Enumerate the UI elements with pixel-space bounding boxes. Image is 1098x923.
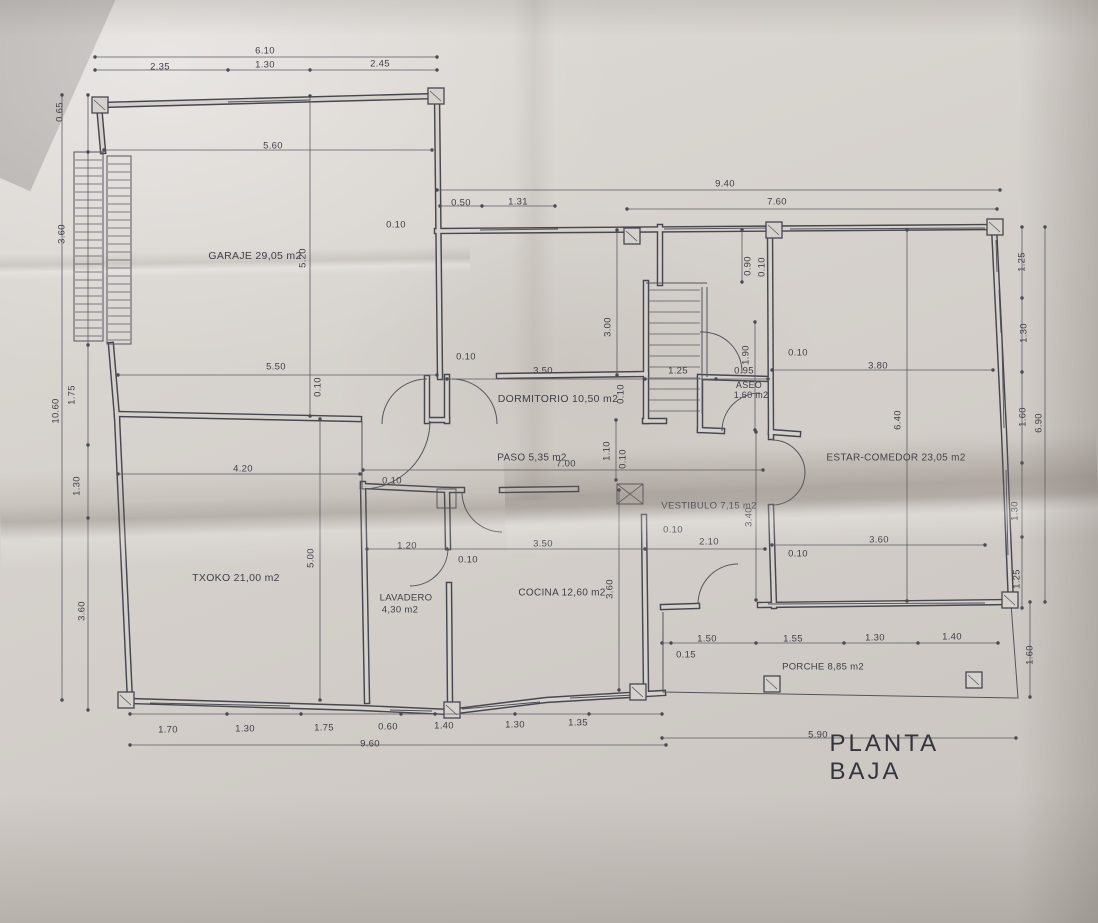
dimension-label: 1.40 bbox=[942, 632, 962, 643]
dimension-label: 7.60 bbox=[767, 197, 787, 208]
dimension-label: 1.90 bbox=[741, 345, 752, 365]
dimension-label: 0.10 bbox=[616, 384, 627, 404]
room-label-dormitorio: DORMITORIO 10,50 m2 bbox=[498, 393, 618, 405]
dimension-label: 0.10 bbox=[458, 555, 478, 566]
dimension-label: 0.95 bbox=[734, 366, 754, 377]
dimension-label: 1.10 bbox=[602, 441, 613, 461]
dimension-label: 3.60 bbox=[77, 601, 88, 621]
dimension-label: 1.60 bbox=[1018, 407, 1029, 427]
dimension-label: 3.50 bbox=[533, 539, 553, 550]
dimension-label: 9.40 bbox=[715, 179, 735, 190]
room-label-porche: PORCHE 8,85 m2 bbox=[782, 662, 864, 673]
dimension-label: 9.60 bbox=[360, 739, 380, 750]
dimension-label: 0.65 bbox=[55, 102, 66, 122]
room-label-lavadero: LAVADERO bbox=[380, 593, 433, 604]
dimension-label: 0.10 bbox=[386, 220, 406, 231]
dimension-label: 0.10 bbox=[313, 377, 324, 397]
dimension-label: 5.00 bbox=[306, 548, 317, 568]
dimension-label: 1.30 bbox=[865, 633, 885, 644]
dimension-label: 1.31 bbox=[508, 197, 528, 208]
room-label-estar-comedor: ESTAR-COMEDOR 23,05 m2 bbox=[826, 453, 965, 464]
dimension-label: 5.20 bbox=[298, 248, 309, 268]
dimension-label: 0.10 bbox=[788, 348, 808, 359]
dimension-label: 2.45 bbox=[370, 59, 390, 70]
dimension-label: 1.60 bbox=[1025, 645, 1036, 665]
dimension-label: 0.10 bbox=[663, 525, 683, 536]
dimension-label: 5.60 bbox=[263, 141, 283, 152]
plan-title: PLANTA BAJA bbox=[830, 730, 1009, 786]
dimension-label: 0.60 bbox=[378, 722, 398, 733]
room-label-lavadero-area: 4,30 m2 bbox=[382, 605, 418, 616]
dimension-label: 1.30 bbox=[235, 724, 255, 735]
dimension-label: 0.90 bbox=[743, 256, 754, 276]
dimension-label: 3.60 bbox=[869, 535, 889, 546]
dimension-label: 7.00 bbox=[556, 459, 576, 470]
room-label-txoko: TXOKO 21,00 m2 bbox=[192, 572, 280, 584]
dimension-label: 5.50 bbox=[266, 362, 286, 373]
dimension-label: 1.30 bbox=[1019, 323, 1030, 343]
room-label-vestibulo: VESTIBULO 7,15 m2 bbox=[661, 501, 756, 512]
dimension-label: 1.25 bbox=[1017, 252, 1028, 272]
dimension-label: 6.10 bbox=[255, 46, 275, 57]
dimension-label: 3.60 bbox=[57, 224, 68, 244]
dimension-label: 0.10 bbox=[456, 352, 476, 363]
dimension-label: 1.40 bbox=[434, 721, 454, 732]
dimension-label: 1.20 bbox=[397, 541, 417, 552]
room-label-aseo: ASEO bbox=[736, 380, 762, 390]
dimension-label: 3.00 bbox=[603, 317, 614, 337]
dimension-label: 1.55 bbox=[783, 634, 803, 645]
dimension-label: 1.75 bbox=[314, 723, 334, 734]
dimension-label: 0.15 bbox=[676, 650, 696, 661]
dimension-label: 6.90 bbox=[1034, 413, 1045, 433]
dimension-label: 0.10 bbox=[382, 476, 402, 487]
dimension-label: 3.80 bbox=[868, 361, 888, 372]
dimension-label: 0.10 bbox=[618, 449, 629, 469]
room-label-garaje: GARAJE 29,05 m2 bbox=[208, 250, 301, 262]
dimension-label: 1.30 bbox=[255, 60, 275, 71]
dimension-label: 3.60 bbox=[605, 579, 616, 599]
dimension-label: 10.60 bbox=[51, 398, 62, 423]
dimension-label: 1.70 bbox=[158, 725, 178, 736]
dimension-label: 2.10 bbox=[699, 537, 719, 548]
dimension-label: 0.50 bbox=[451, 198, 471, 209]
dimension-label: 4.20 bbox=[233, 464, 253, 475]
dimension-label: 1.30 bbox=[1010, 501, 1021, 521]
dimension-label: 1.30 bbox=[505, 720, 525, 731]
dimension-label: 6.40 bbox=[893, 410, 904, 430]
blueprint-photo: GARAJE 29,05 m2DORMITORIO 10,50 m2PASO 5… bbox=[0, 0, 1098, 923]
dimension-label: 2.35 bbox=[150, 62, 170, 73]
dimension-label: 0.10 bbox=[788, 549, 808, 560]
dimension-label: 1.30 bbox=[72, 476, 83, 496]
room-label-aseo-area: 1,60 m2 bbox=[734, 390, 769, 400]
dimension-label: 1.50 bbox=[697, 634, 717, 645]
dimension-label: 5.90 bbox=[808, 730, 828, 741]
dimension-label: 1.25 bbox=[668, 366, 688, 377]
dimension-label: 1.25 bbox=[1012, 569, 1023, 589]
dimension-label: 0.10 bbox=[757, 257, 768, 277]
dimension-label: 3.40 bbox=[744, 507, 755, 527]
room-label-cocina: COCINA 12,60 m2 bbox=[518, 588, 605, 599]
dimension-label: 3.50 bbox=[533, 366, 553, 377]
dimension-label: 1.35 bbox=[568, 718, 588, 729]
dimension-label: 1.75 bbox=[67, 385, 78, 405]
